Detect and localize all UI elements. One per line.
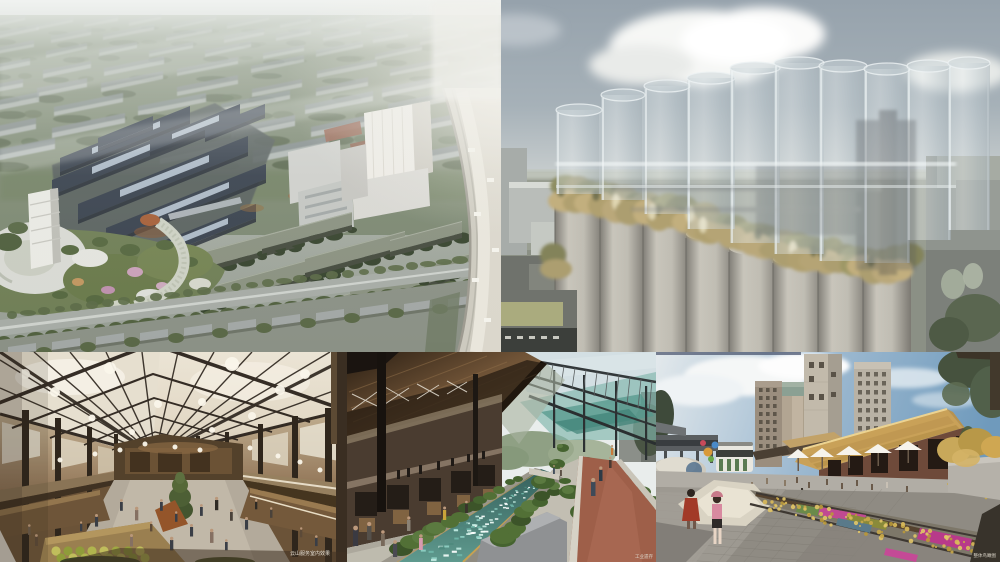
svg-text:工业遗存: 工业遗存 bbox=[635, 553, 653, 560]
svg-text:云山服务室内效果: 云山服务室内效果 bbox=[290, 550, 330, 557]
svg-text:整体鸟瞰图: 整体鸟瞰图 bbox=[974, 552, 997, 559]
